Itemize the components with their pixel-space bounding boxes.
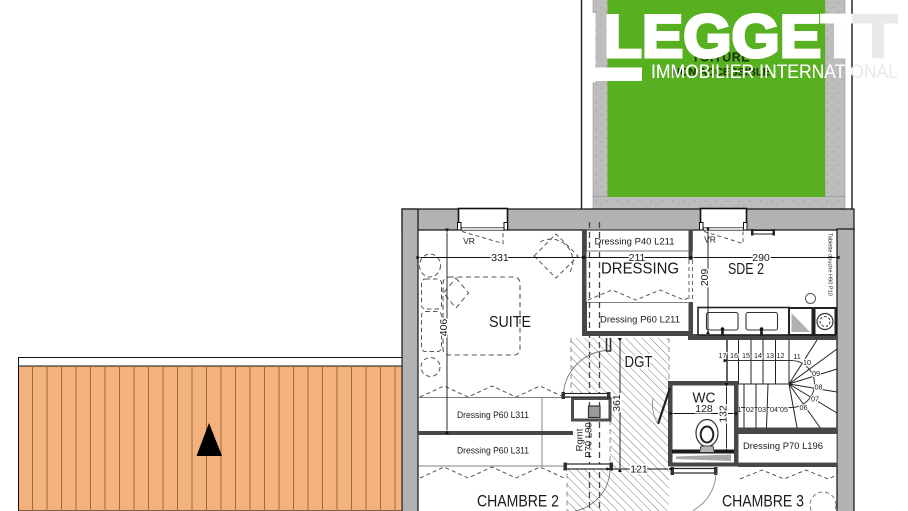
svg-text:Dressing P60 L311: Dressing P60 L311 (457, 446, 529, 457)
svg-text:Dressing P70 L196: Dressing P70 L196 (743, 441, 823, 452)
svg-text:07: 07 (811, 395, 819, 404)
svg-text:CHAMBRE 2: CHAMBRE 2 (477, 492, 559, 511)
svg-text:121: 121 (630, 464, 648, 476)
svg-text:406: 406 (438, 319, 450, 337)
svg-text:209: 209 (699, 269, 711, 287)
svg-text:Dressing P60 L211: Dressing P60 L211 (600, 315, 680, 326)
svg-text:09: 09 (812, 369, 820, 378)
svg-text:05: 05 (780, 405, 788, 414)
svg-text:211: 211 (629, 252, 646, 264)
svg-text:VR: VR (704, 235, 716, 245)
svg-text:132: 132 (718, 405, 730, 423)
svg-text:DGT: DGT (625, 354, 653, 371)
svg-text:SUITE: SUITE (489, 314, 531, 331)
svg-text:331: 331 (491, 252, 509, 264)
svg-text:03: 03 (758, 405, 766, 414)
svg-text:P70 L90: P70 L90 (584, 422, 595, 457)
svg-text:13: 13 (766, 351, 774, 360)
svg-text:02: 02 (746, 405, 754, 414)
svg-text:290: 290 (752, 252, 770, 264)
svg-text:Tablette douche H90 P10: Tablette douche H90 P10 (827, 233, 833, 296)
svg-text:14: 14 (754, 351, 762, 360)
svg-text:17: 17 (719, 351, 727, 360)
svg-text:15: 15 (742, 351, 750, 360)
svg-text:Dressing P40 L211: Dressing P40 L211 (595, 237, 675, 248)
svg-text:11: 11 (793, 352, 800, 361)
svg-text:08: 08 (815, 383, 823, 392)
svg-text:VR: VR (463, 236, 475, 246)
svg-text:16: 16 (730, 351, 738, 360)
svg-text:12: 12 (777, 351, 785, 360)
svg-text:128: 128 (695, 403, 713, 415)
svg-text:361: 361 (611, 394, 623, 412)
svg-text:04: 04 (770, 405, 778, 414)
svg-text:10: 10 (803, 358, 811, 367)
svg-text:CHAMBRE 3: CHAMBRE 3 (722, 492, 804, 511)
svg-text:Dressing P60 L311: Dressing P60 L311 (457, 410, 529, 421)
svg-text:06: 06 (800, 403, 808, 412)
